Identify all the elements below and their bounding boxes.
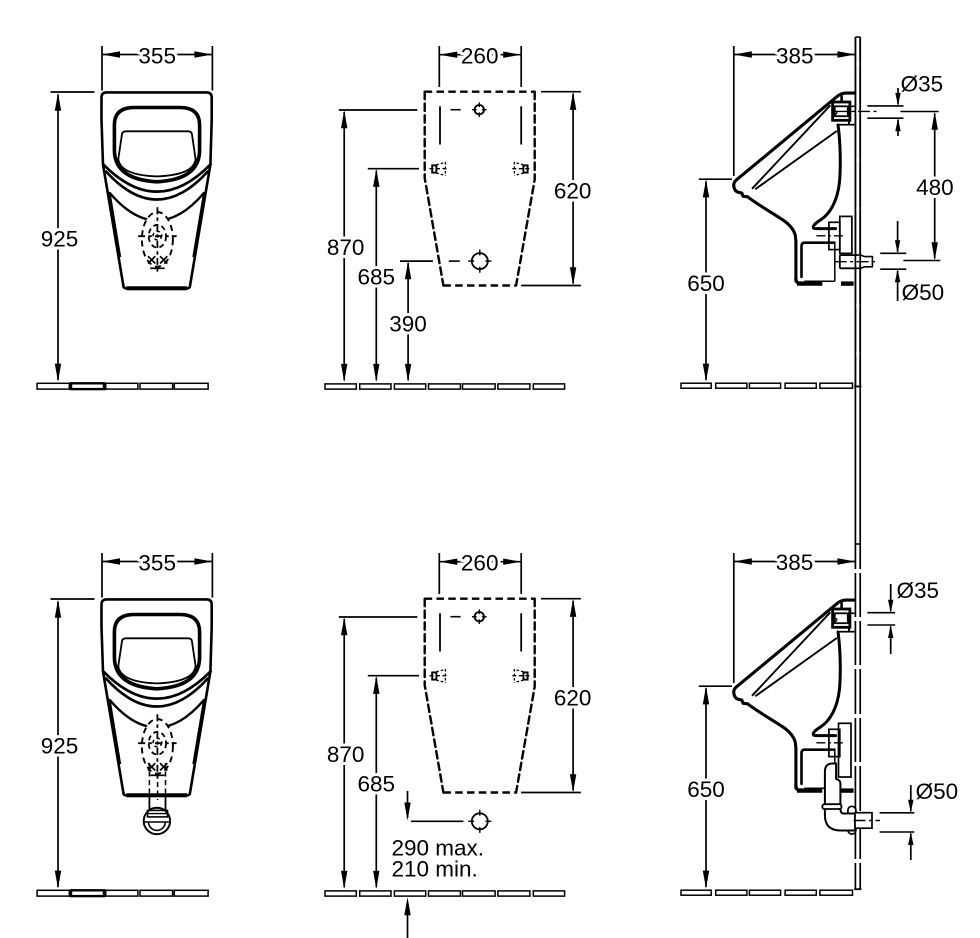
svg-text:355: 355 <box>138 43 176 68</box>
svg-text:Ø35: Ø35 <box>897 578 940 603</box>
svg-text:650: 650 <box>687 271 725 296</box>
svg-text:685: 685 <box>358 264 396 289</box>
svg-text:650: 650 <box>687 777 725 802</box>
svg-text:870: 870 <box>327 235 365 260</box>
svg-text:925: 925 <box>41 734 79 759</box>
svg-text:390: 390 <box>389 312 427 337</box>
svg-text:210 min.: 210 min. <box>392 857 478 882</box>
svg-text:Ø50: Ø50 <box>902 280 945 305</box>
svg-text:925: 925 <box>41 227 79 252</box>
svg-text:355: 355 <box>138 550 176 575</box>
svg-text:385: 385 <box>776 550 814 575</box>
svg-text:620: 620 <box>554 686 592 711</box>
svg-text:870: 870 <box>327 742 365 767</box>
svg-text:685: 685 <box>358 771 396 796</box>
svg-text:480: 480 <box>916 175 954 200</box>
svg-text:Ø50: Ø50 <box>916 779 959 804</box>
svg-text:260: 260 <box>461 551 499 576</box>
svg-text:Ø35: Ø35 <box>901 72 944 97</box>
svg-text:260: 260 <box>461 44 499 69</box>
svg-text:620: 620 <box>554 179 592 204</box>
svg-text:385: 385 <box>776 43 814 68</box>
